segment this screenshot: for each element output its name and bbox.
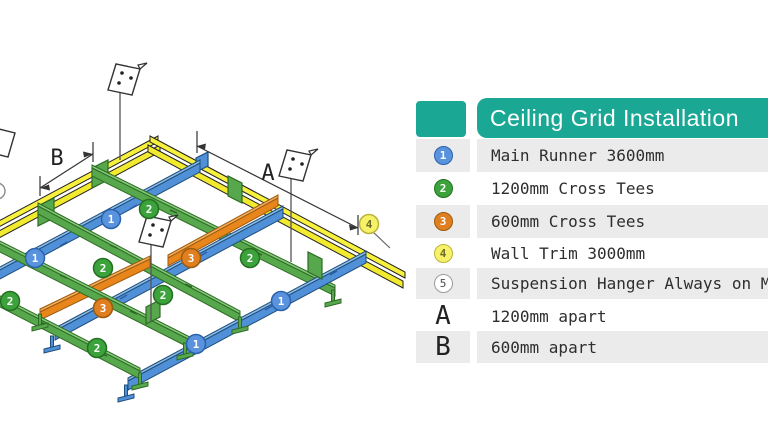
badge-wall-trim: 4 [360, 215, 379, 234]
svg-text:2: 2 [94, 342, 101, 355]
badge-main-runner: 1 [187, 335, 206, 354]
badge-cross-tee-1200: 2 [88, 339, 107, 358]
svg-text:1: 1 [193, 338, 200, 351]
suspension-hanger-plate [108, 63, 147, 95]
ceiling-grid-diagram: A B 1 1 1 1 2 [0, 0, 425, 432]
badge-cross-tee-1200: 2 [154, 286, 173, 305]
badge-cross-tee-1200: 2 [241, 249, 260, 268]
svg-text:3: 3 [188, 252, 195, 265]
badge-cross-tee-600: 3 [182, 249, 201, 268]
legend-badge-1: 1 [434, 146, 453, 165]
legend-letter-a: A [435, 303, 451, 329]
legend-title-bar: Ceiling Grid Installation [477, 98, 768, 138]
legend-text-cross-tee-600: 600mm Cross Tees [491, 212, 645, 231]
legend-badge-3: 3 [434, 212, 453, 231]
legend-text-dimension-a: 1200mm apart [491, 307, 607, 326]
badge-cross-tee-1200: 2 [140, 200, 159, 219]
badge-5-marker-partial [0, 183, 5, 199]
badge-main-runner: 1 [102, 210, 121, 229]
svg-text:2: 2 [100, 262, 107, 275]
legend-text-main-runner: Main Runner 3600mm [491, 146, 664, 165]
svg-text:2: 2 [247, 252, 254, 265]
svg-text:2: 2 [7, 295, 14, 308]
svg-text:1: 1 [32, 252, 39, 265]
badge-cross-tee-1200: 2 [94, 259, 113, 278]
suspension-hanger-plate [139, 215, 178, 247]
legend-title: Ceiling Grid Installation [490, 105, 739, 132]
legend-text-wall-trim: Wall Trim 3000mm [491, 244, 645, 263]
svg-text:2: 2 [160, 289, 167, 302]
legend-text-suspension-hanger: Suspension Hanger Always on M [491, 274, 768, 293]
badge-cross-tee-600: 3 [94, 299, 113, 318]
svg-text:3: 3 [100, 302, 107, 315]
legend-text-cross-tee-1200: 1200mm Cross Tees [491, 179, 655, 198]
dimension-a-label: A [261, 161, 274, 186]
badge-main-runner: 1 [26, 249, 45, 268]
svg-text:1: 1 [278, 295, 285, 308]
legend-letter-b: B [435, 334, 451, 360]
svg-text:2: 2 [146, 203, 153, 216]
svg-text:4: 4 [366, 218, 373, 231]
legend-badge-5: 5 [434, 274, 453, 293]
badge-cross-tee-1200: 2 [1, 292, 20, 311]
legend-badge-2: 2 [434, 179, 453, 198]
badge-main-runner: 1 [272, 292, 291, 311]
legend-badge-4: 4 [434, 244, 453, 263]
svg-text:1: 1 [108, 213, 115, 226]
suspension-hanger-plate [279, 149, 318, 181]
badge-4-leader [373, 232, 390, 248]
dimension-b-label: B [50, 146, 63, 171]
suspension-hanger-plate-partial [0, 128, 15, 157]
legend-text-dimension-b: 600mm apart [491, 338, 597, 357]
infographic-canvas: A B 1 1 1 1 2 [0, 0, 768, 432]
